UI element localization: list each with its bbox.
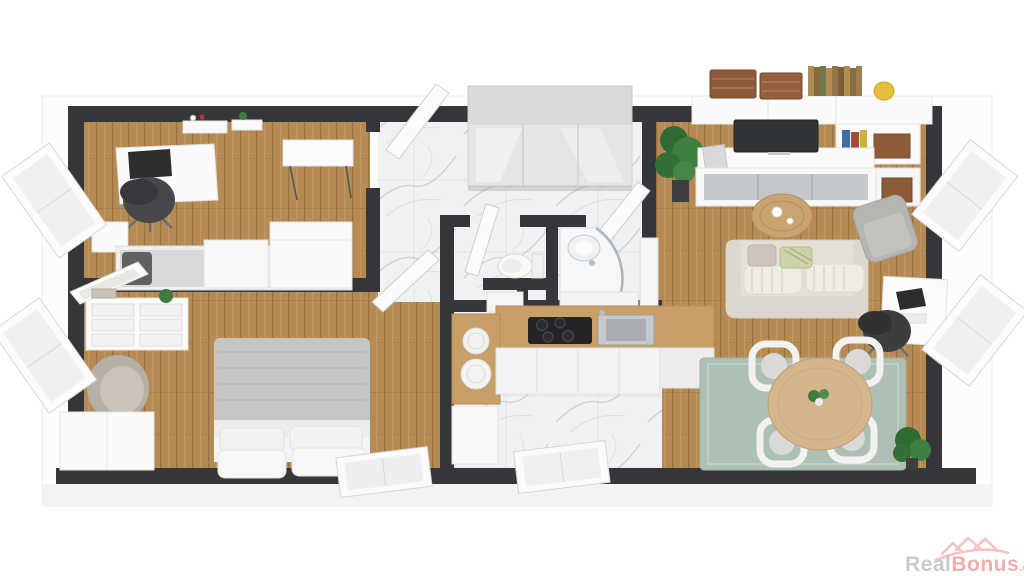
wall-sideboard bbox=[283, 140, 353, 166]
floorplan-render: RealBonus.cz bbox=[0, 0, 1024, 576]
seat-cushion bbox=[806, 264, 864, 292]
burner bbox=[543, 332, 553, 342]
chair-back bbox=[120, 179, 158, 205]
books-stack bbox=[92, 289, 116, 298]
storage-chest bbox=[270, 222, 352, 288]
wicker-basket bbox=[710, 70, 756, 98]
hall-wardrobe bbox=[468, 86, 632, 191]
tea-table bbox=[183, 121, 227, 133]
book-row bbox=[808, 66, 862, 96]
storage-box bbox=[204, 240, 268, 288]
wall-wc-bath bbox=[546, 227, 558, 312]
pillow bbox=[218, 450, 286, 478]
armchair-cushion bbox=[100, 366, 144, 414]
pillow bbox=[290, 426, 362, 450]
floorplan-svg: RealBonus.cz bbox=[0, 0, 1024, 576]
hall-wardrobe-top bbox=[468, 86, 632, 124]
plates bbox=[463, 328, 489, 354]
cup bbox=[787, 218, 793, 224]
tv bbox=[734, 120, 818, 152]
bedroom-armchair bbox=[87, 355, 149, 421]
storage-box-brown bbox=[874, 134, 910, 158]
seat-cushion bbox=[744, 266, 802, 294]
chair-back bbox=[858, 311, 892, 335]
tv-stand bbox=[768, 152, 790, 155]
bottle bbox=[199, 114, 204, 119]
picture-frame bbox=[702, 145, 727, 172]
dresser-plant bbox=[159, 289, 173, 303]
photo-pillow bbox=[748, 245, 776, 266]
watermark-real: Real bbox=[905, 553, 951, 576]
monitor bbox=[128, 149, 172, 179]
watermark: RealBonus.cz bbox=[905, 538, 1024, 576]
wall-living-left bbox=[642, 122, 656, 238]
toilet-seat bbox=[502, 259, 522, 273]
watermark-text: RealBonus.cz bbox=[905, 553, 1024, 576]
sink-basin bbox=[606, 319, 646, 341]
plant-pot bbox=[906, 458, 918, 470]
wall-shelf bbox=[232, 120, 262, 130]
watermark-bonus: Bonus bbox=[951, 553, 1019, 576]
sofa-backrest bbox=[726, 296, 868, 318]
wardrobe-shadow bbox=[468, 186, 632, 191]
sink-faucet bbox=[599, 310, 605, 316]
dining-set bbox=[752, 340, 880, 464]
kitchen-low-unit bbox=[452, 406, 498, 464]
cup bbox=[190, 115, 195, 120]
toilet-tank bbox=[532, 254, 543, 278]
wall-wc-top-a bbox=[440, 215, 470, 227]
pillow bbox=[220, 428, 284, 452]
yellow-vase bbox=[874, 82, 894, 100]
wall-wc-half bbox=[483, 278, 556, 290]
wall-bath-right-white bbox=[640, 238, 658, 312]
shelf-plant bbox=[239, 112, 247, 120]
teapot bbox=[772, 207, 782, 217]
wall-office-stub bbox=[366, 122, 380, 132]
plates bbox=[461, 359, 491, 389]
basin-inner bbox=[575, 241, 593, 255]
wall-wc-top-b bbox=[520, 215, 586, 227]
watermark-tld: .cz bbox=[1019, 560, 1024, 574]
burner bbox=[537, 320, 548, 331]
slab-front-edge bbox=[42, 484, 992, 506]
sofa bbox=[726, 240, 868, 318]
sofa-arm bbox=[726, 240, 741, 312]
wicker-basket bbox=[760, 73, 802, 99]
plant-pot bbox=[672, 180, 689, 202]
faucet bbox=[589, 260, 595, 266]
burner bbox=[563, 331, 574, 342]
burner bbox=[555, 318, 565, 328]
wall-office-right bbox=[366, 188, 380, 292]
coffee-table bbox=[752, 194, 812, 238]
